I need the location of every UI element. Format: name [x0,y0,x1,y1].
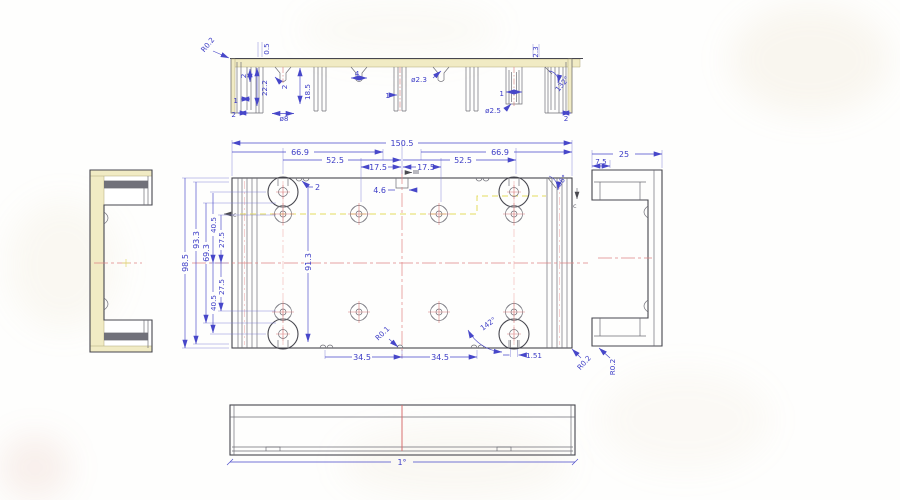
dim-section-185: 18.5 [303,84,312,100]
screw-boss [272,301,294,323]
dim-section-groove2b: 2 [280,85,289,90]
bottom-view-feet [266,447,511,451]
section-lid-hatch [233,59,580,67]
drawing-canvas: R0.2 0.5 2 22.2 2 18.5 1 2 ø8 4 ø2.3 1 ø… [0,0,900,500]
right-view-tabs [644,206,648,312]
dim-plan-669-right: 66.9 [491,148,509,157]
dim-plan-overall-width: 150.5 [391,139,414,148]
dim-plan-525-right: 52.5 [454,156,472,165]
screw-boss [348,203,370,225]
dim-plan-275-top: 27.5 [217,232,226,248]
dim-plan-notch2: 2 [315,183,320,192]
section-ribs [314,67,478,111]
section-view: R0.2 0.5 2 22.2 2 18.5 1 2 ø8 4 ø2.3 1 ø… [199,35,583,123]
dim-plan-height-985: 98.5 [181,254,190,272]
right-side-view: 25 7.5 R0.2 [592,150,662,375]
screw-boss [428,301,450,323]
left-view-center-mark [122,259,130,267]
leader-section-corner-radius [213,51,229,58]
dim-section-dia23: ø2.3 [411,75,427,84]
dim-right-75: 7.5 [595,157,606,166]
bottom-view: 1° [227,405,578,467]
dim-plan-175-left: 17.5 [369,163,387,172]
datum-c-right: c [573,202,577,210]
screw-boss [348,301,370,323]
dim-section-lip-05: 0.5 [262,43,271,54]
dim-section-dia8: ø8 [280,114,289,123]
dim-section-222: 22.2 [260,80,269,96]
dim-section-wall2a: 2 [231,110,236,119]
screw-boss [503,203,525,225]
leader-plan-r01 [389,339,398,347]
leader-right-r02 [599,348,610,358]
screw-boss [503,301,525,323]
left-view-tabs [104,212,108,310]
dim-plan-669-left: 66.9 [291,148,309,157]
left-view-rib-top [104,181,148,188]
cad-drawing-sheet: R0.2 0.5 2 22.2 2 18.5 1 2 ø8 4 ø2.3 1 ø… [0,0,900,500]
dim-section-rib1c: 1 [499,89,504,98]
dim-plan-151: 1.51 [526,351,542,360]
screw-boss [272,203,294,225]
dim-section-slot4: 4 [355,69,360,78]
dim-plan-height-693: 69.3 [202,244,211,262]
datum-flag-box [413,170,419,174]
dim-plan-525-left: 52.5 [326,156,344,165]
dim-right-25: 25 [619,150,629,159]
dim-right-r02: R0.2 [608,359,617,375]
dim-section-wall2b: 2 [564,114,569,123]
dim-plan-46: 4.6 [373,186,386,195]
leader-plan-notch2 [302,181,313,187]
dim-plan-angle142: 142° [478,315,497,332]
left-view-hatch-top [90,170,152,176]
dim-plan-r02: R0.2 [575,353,593,371]
dim-section-dia25: ø2.5 [485,106,501,115]
dim-section-rib1b: 1 [385,91,390,100]
screw-boss [428,203,450,225]
left-view-hatch-wall [90,170,104,352]
dim-plan-height-913: 91.3 [304,253,313,271]
dim-plan-r01: R0.1 [373,324,391,342]
dim-plan-345-right: 34.5 [431,353,449,362]
leader-section-dia25 [505,104,511,110]
dim-bottom-draft-angle: 1° [397,458,406,467]
dim-plan-275-bottom: 27.5 [217,279,226,295]
plan-view: 150.5 66.9 66.9 52.5 52.5 17.5 17.5 2 4.… [181,139,593,372]
left-side-view [90,170,152,352]
dim-plan-height-933: 93.3 [192,231,201,249]
dim-plan-405-bottom: 40.5 [209,295,218,311]
dim-section-rib1a: 1 [233,96,238,105]
left-view-rib-bottom [104,333,148,340]
dim-plan-345-left: 34.5 [353,353,371,362]
left-view-hatch-bottom [90,346,152,352]
section-right-wall-hatch [568,59,572,113]
dim-plan-405-top: 40.5 [209,217,218,233]
dim-section-lip23: 2.3 [531,46,540,57]
leader-plan-r02 [572,349,581,358]
section-ext-lines [258,42,539,57]
dim-section-groove2a: 2 [239,74,248,79]
arc-plan-142 [468,330,502,352]
dim-plan-175-right: 17.5 [417,163,435,172]
